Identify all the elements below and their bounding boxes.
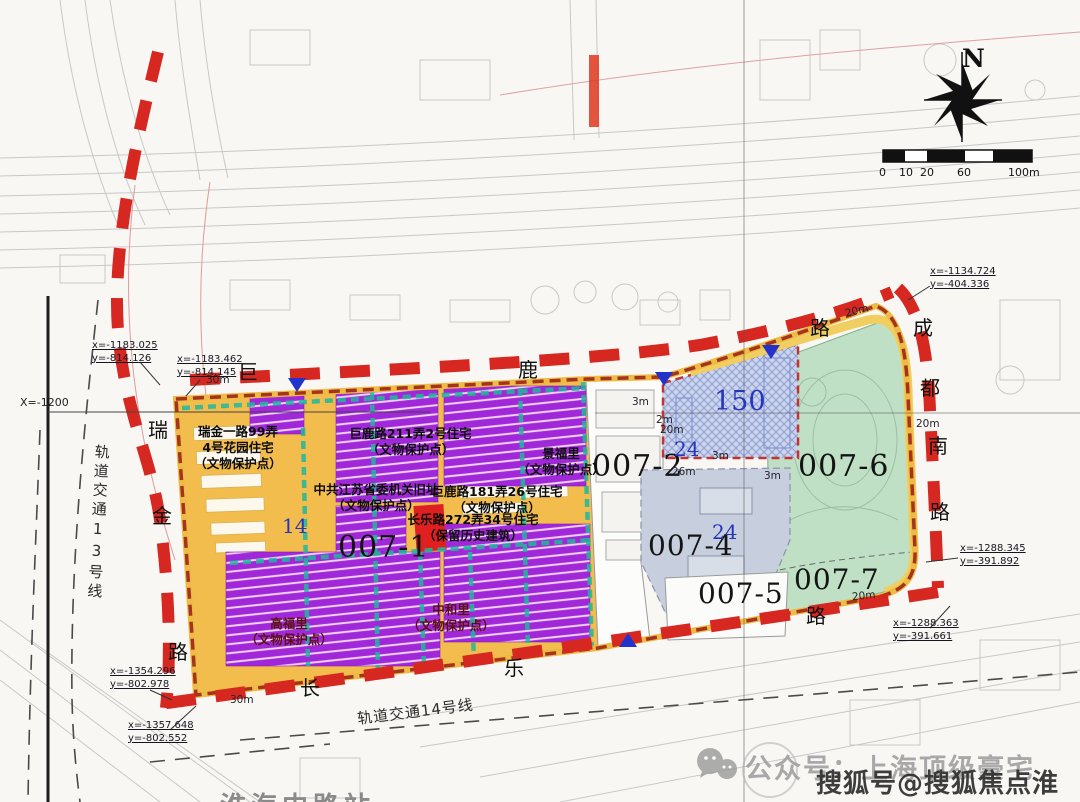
coord-y: y=-802.978 [110,679,176,692]
scale-tick-10: 10 [899,166,913,179]
heritage-line: 4号花园住宅 [162,440,314,456]
coord-y: y=-814.126 [92,353,158,366]
heritage-line: 瑞金一路99弄 [162,424,314,440]
heritage-line: （文物保护点） [496,462,626,478]
heritage-jingfuli: 景福里 （文物保护点） [496,446,626,478]
heritage-line: （文物保护点） [162,456,314,472]
road-ruijin-char-2: 金 [152,506,172,526]
watermark-sohu-text: 搜狐号@搜狐焦点淮南站 [816,763,1080,802]
coord-topleft-outer: x=-1183.025 y=-814.126 [92,340,158,365]
road-changle-char-3: 路 [806,606,826,626]
heritage-zhongheli: 中和里 （文物保护点） [390,602,512,634]
heritage-ruijin99: 瑞金一路99弄 4号花园住宅 （文物保护点） [162,424,314,472]
road-changle-char-2: 乐 [504,658,524,678]
coord-y: y=-802.552 [128,733,194,746]
road-julu-char-2: 鹿 [518,360,538,380]
heritage-changle272: 长乐路272弄34号住宅 （保留历史建筑） [384,512,562,544]
grid-x-label: X=-1200 [20,396,69,409]
coord-x: x=-1134.724 [930,266,996,279]
coord-y: y=-391.892 [960,556,1026,569]
coord-x: x=-1288.345 [960,543,1026,556]
heritage-line: 巨鹿路211弄2号住宅 [328,426,493,442]
coord-bottomright: x=-1288.363 y=-391.661 [893,618,959,643]
mark-14: 14 [282,516,307,536]
scale-tick-100: 100m [1008,166,1040,179]
dim-3m-b: 3m [712,450,729,462]
mark-24-upper: 24 [674,439,699,459]
dim-30m-top: 30m [206,374,230,386]
road-changle-char-1: 长 [300,678,320,698]
heritage-line: （保留历史建筑） [384,528,562,544]
planning-map: N 0 10 20 60 100m 007-1 007-2 007-4 007-… [0,0,1080,802]
scale-tick-0: 0 [879,166,886,179]
heritage-line: （文物保护点） [328,442,493,458]
road-chengdu-char-4: 路 [930,502,950,522]
road-chengdu-char-2: 都 [920,378,940,398]
coord-y: y=-391.661 [893,631,959,644]
scale-tick-20: 20 [920,166,934,179]
heritage-julu211: 巨鹿路211弄2号住宅 （文物保护点） [328,426,493,458]
heritage-line: 巨鹿路181弄26号住宅 [408,484,586,500]
wechat-icon [694,748,740,782]
scale-tick-60: 60 [957,166,971,179]
dim-20m-bottomright: 20m [851,589,876,603]
coord-bottomleft-inner: x=-1354.296 y=-802.978 [110,666,176,691]
red-road-marker [589,55,599,127]
dim-3m-c: 3m [764,470,781,482]
coord-x: x=-1357.648 [128,720,194,733]
road-julu-char-3: 路 [810,318,830,338]
scale-bar [883,150,1032,162]
coord-x: x=-1183.462 [177,354,243,367]
parcel-label-007-6: 007-6 [798,452,889,482]
heritage-line: 景福里 [496,446,626,462]
heritage-line: （文物保护点） [390,618,512,634]
coord-topright: x=-1134.724 y=-404.336 [930,266,996,291]
coord-y: y=-404.336 [930,279,996,292]
dim-20m-right: 20m [916,418,940,430]
heritage-gaofuli: 高福里 （文物保护点） [228,616,350,648]
dim-30m-bottom: 30m [230,694,254,706]
road-chengdu-char-1: 成 [913,318,933,338]
heritage-line: 长乐路272弄34号住宅 [384,512,562,528]
north-label: N [962,44,985,73]
coord-right-lower: x=-1288.345 y=-391.892 [960,543,1026,568]
heritage-line: 中和里 [390,602,512,618]
heritage-line: 高福里 [228,616,350,632]
mark-24-lower: 24 [712,522,737,542]
mark-150: 150 [714,388,766,415]
coord-x: x=-1183.025 [92,340,158,353]
dim-2m: 2m [656,414,673,426]
coord-bottomleft-outer: x=-1357.648 y=-802.552 [128,720,194,745]
station-label: 淮海中路站 [220,786,375,802]
coord-x: x=-1354.296 [110,666,176,679]
road-chengdu-char-3: 南 [928,436,948,456]
dim-3m-a: 3m [632,396,649,408]
parcel-label-007-5: 007-5 [698,580,784,608]
heritage-line: （文物保护点） [228,632,350,648]
coord-x: x=-1288.363 [893,618,959,631]
road-ruijin-char-3: 路 [168,642,188,662]
dim-26m: 26m [672,466,696,478]
